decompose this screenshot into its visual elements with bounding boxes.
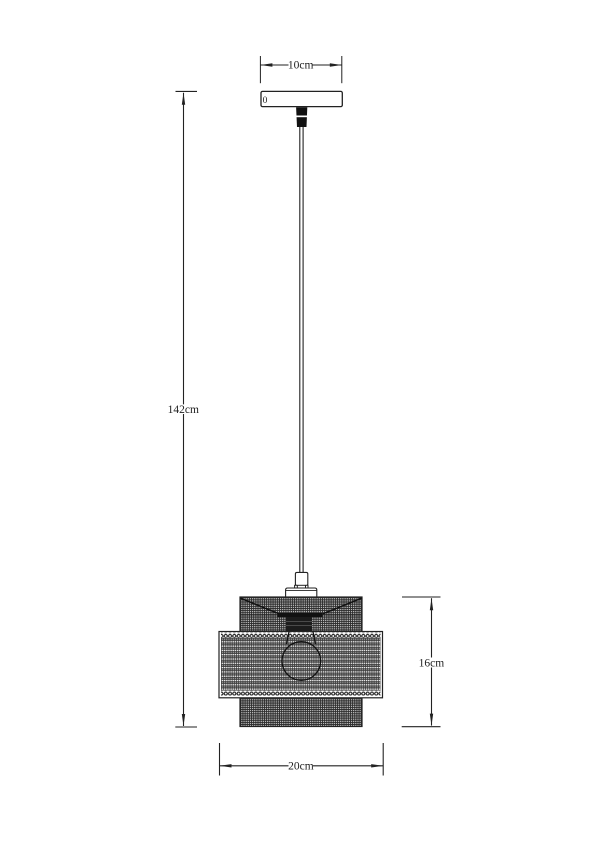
svg-text:0: 0: [263, 96, 268, 106]
svg-text:10cm: 10cm: [288, 60, 314, 72]
svg-text:20cm: 20cm: [288, 761, 314, 773]
svg-text:16cm: 16cm: [419, 657, 445, 669]
svg-text:142cm: 142cm: [168, 404, 199, 416]
